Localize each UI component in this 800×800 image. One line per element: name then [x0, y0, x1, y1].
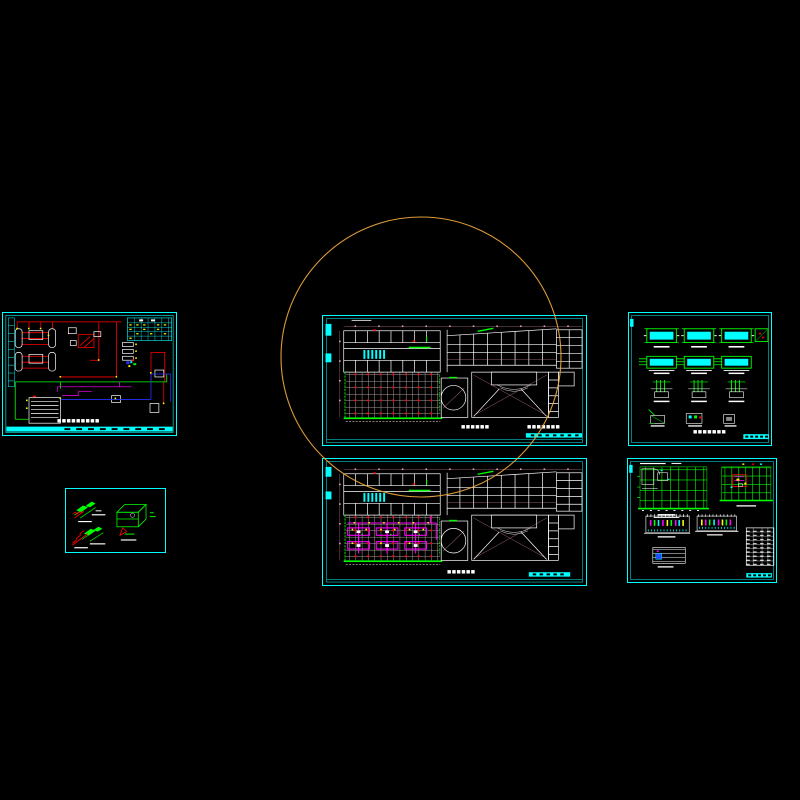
drawing-title: ■■■■■■	[461, 425, 490, 430]
machine-room-graphics	[628, 459, 776, 582]
sheet-floor-plan-ducts[interactable]: ■■■■■■	[322, 458, 587, 586]
sheet-axon-details[interactable]	[65, 488, 166, 553]
title-bar	[746, 573, 772, 577]
title-bar	[743, 434, 769, 439]
revision-strip	[8, 318, 14, 387]
duct-detail-a	[72, 502, 105, 523]
sensor-box-detail	[686, 413, 702, 423]
duct-plan-graphics	[323, 459, 586, 585]
equipment-details-graphics	[629, 313, 771, 445]
schematic-graphics	[3, 313, 176, 435]
header-notes	[640, 463, 762, 465]
equipment-box-isometric	[117, 505, 156, 541]
sheet-machine-room-details[interactable]	[627, 458, 777, 583]
drawing-title: ■■■■■■■■■	[57, 419, 100, 424]
damper-detail	[755, 329, 768, 342]
drawing-subtitle: ■■■■■■■	[527, 425, 560, 430]
sheet-floor-plan-grid[interactable]: ■■■■■■ ■■■■■■■	[322, 315, 587, 446]
steam-piping	[17, 322, 165, 404]
title-bar	[327, 433, 582, 439]
section-c	[644, 516, 690, 538]
sleeve-detail	[724, 414, 735, 423]
legend-table	[127, 318, 171, 341]
title-bar	[6, 427, 172, 432]
drawing-title: ■■■■■■	[447, 570, 476, 575]
machine-room-plan-b	[720, 467, 773, 507]
water-piping	[60, 374, 170, 402]
parts-table	[746, 528, 774, 565]
machine-room-plan-a	[637, 467, 709, 518]
axon-graphics	[66, 489, 165, 552]
sheet-equipment-details[interactable]: ■■■■■■■	[628, 312, 772, 446]
section-e	[653, 548, 685, 568]
condensate-piping	[58, 382, 132, 396]
hanger-detail	[649, 410, 665, 424]
cad-model-space: ■■■■■■■■■	[0, 0, 800, 800]
drawing-title: ■■■■■■■	[693, 430, 726, 435]
section-d	[695, 516, 738, 536]
sheet-heating-schematic[interactable]: ■■■■■■■■■	[2, 312, 177, 436]
duct-detail-b	[72, 527, 105, 549]
return-piping	[15, 374, 167, 419]
